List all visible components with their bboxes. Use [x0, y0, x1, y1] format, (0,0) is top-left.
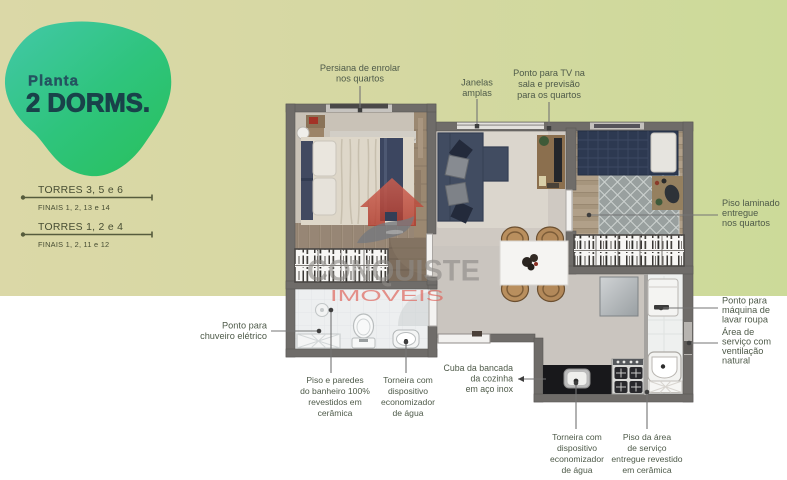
svg-text:cerâmica: cerâmica [318, 408, 353, 418]
svg-text:Torneira com: Torneira com [383, 375, 433, 385]
svg-text:ventilação: ventilação [722, 346, 763, 356]
svg-text:do banheiro 100%: do banheiro 100% [300, 386, 370, 396]
svg-text:Cuba da bancada: Cuba da bancada [444, 363, 514, 373]
svg-text:da cozinha: da cozinha [470, 374, 513, 384]
svg-text:para os quartos: para os quartos [517, 90, 581, 100]
svg-text:Ponto para TV na: Ponto para TV na [513, 68, 586, 78]
svg-text:amplas: amplas [462, 88, 492, 98]
svg-text:economizador: economizador [381, 397, 435, 407]
svg-text:CONQUISTE: CONQUISTE [307, 255, 480, 288]
svg-text:Janelas: Janelas [461, 78, 493, 88]
svg-text:máquina de: máquina de [722, 305, 770, 315]
svg-text:TORRES 3, 5 e 6: TORRES 3, 5 e 6 [38, 185, 123, 196]
svg-text:Persiana de enrolar: Persiana de enrolar [320, 63, 400, 73]
svg-text:2 DORMS.: 2 DORMS. [26, 90, 150, 118]
svg-text:Área de: Área de [722, 327, 754, 337]
svg-text:de serviço: de serviço [627, 443, 666, 453]
svg-text:IMOVEIS: IMOVEIS [330, 288, 444, 305]
svg-text:economizador: economizador [550, 454, 604, 464]
svg-text:dispositivo: dispositivo [557, 443, 597, 453]
svg-text:FINAIS 1, 2, 11 e 12: FINAIS 1, 2, 11 e 12 [38, 240, 109, 249]
svg-text:Ponto para: Ponto para [722, 296, 768, 306]
svg-text:em cerâmica: em cerâmica [622, 465, 671, 475]
svg-text:entregue: entregue [722, 208, 758, 218]
svg-text:TORRES 1, 2 e 4: TORRES 1, 2 e 4 [38, 222, 123, 233]
svg-text:natural: natural [722, 356, 750, 366]
svg-text:lavar roupa: lavar roupa [722, 315, 769, 325]
svg-text:Planta: Planta [28, 73, 79, 90]
svg-text:sala e previsão: sala e previsão [518, 79, 580, 89]
svg-text:nos quartos: nos quartos [336, 74, 384, 84]
svg-text:Ponto para: Ponto para [222, 321, 268, 331]
svg-text:de água: de água [561, 465, 592, 475]
svg-text:de água: de água [392, 408, 423, 418]
svg-text:FINAIS 1, 2, 13 e 14: FINAIS 1, 2, 13 e 14 [38, 203, 110, 212]
svg-text:Piso da área: Piso da área [623, 432, 671, 442]
svg-text:Torneira com: Torneira com [552, 432, 602, 442]
svg-text:Piso e paredes: Piso e paredes [306, 375, 363, 385]
svg-text:revestidos em: revestidos em [308, 397, 362, 407]
svg-text:nos quartos: nos quartos [722, 218, 770, 228]
svg-text:em aço inox: em aço inox [466, 384, 514, 394]
svg-text:serviço com: serviço com [722, 337, 771, 347]
svg-text:Piso laminado: Piso laminado [722, 198, 780, 208]
svg-text:entregue revestido: entregue revestido [611, 454, 682, 464]
svg-text:dispositivo: dispositivo [388, 386, 428, 396]
svg-text:chuveiro elétrico: chuveiro elétrico [200, 331, 267, 341]
